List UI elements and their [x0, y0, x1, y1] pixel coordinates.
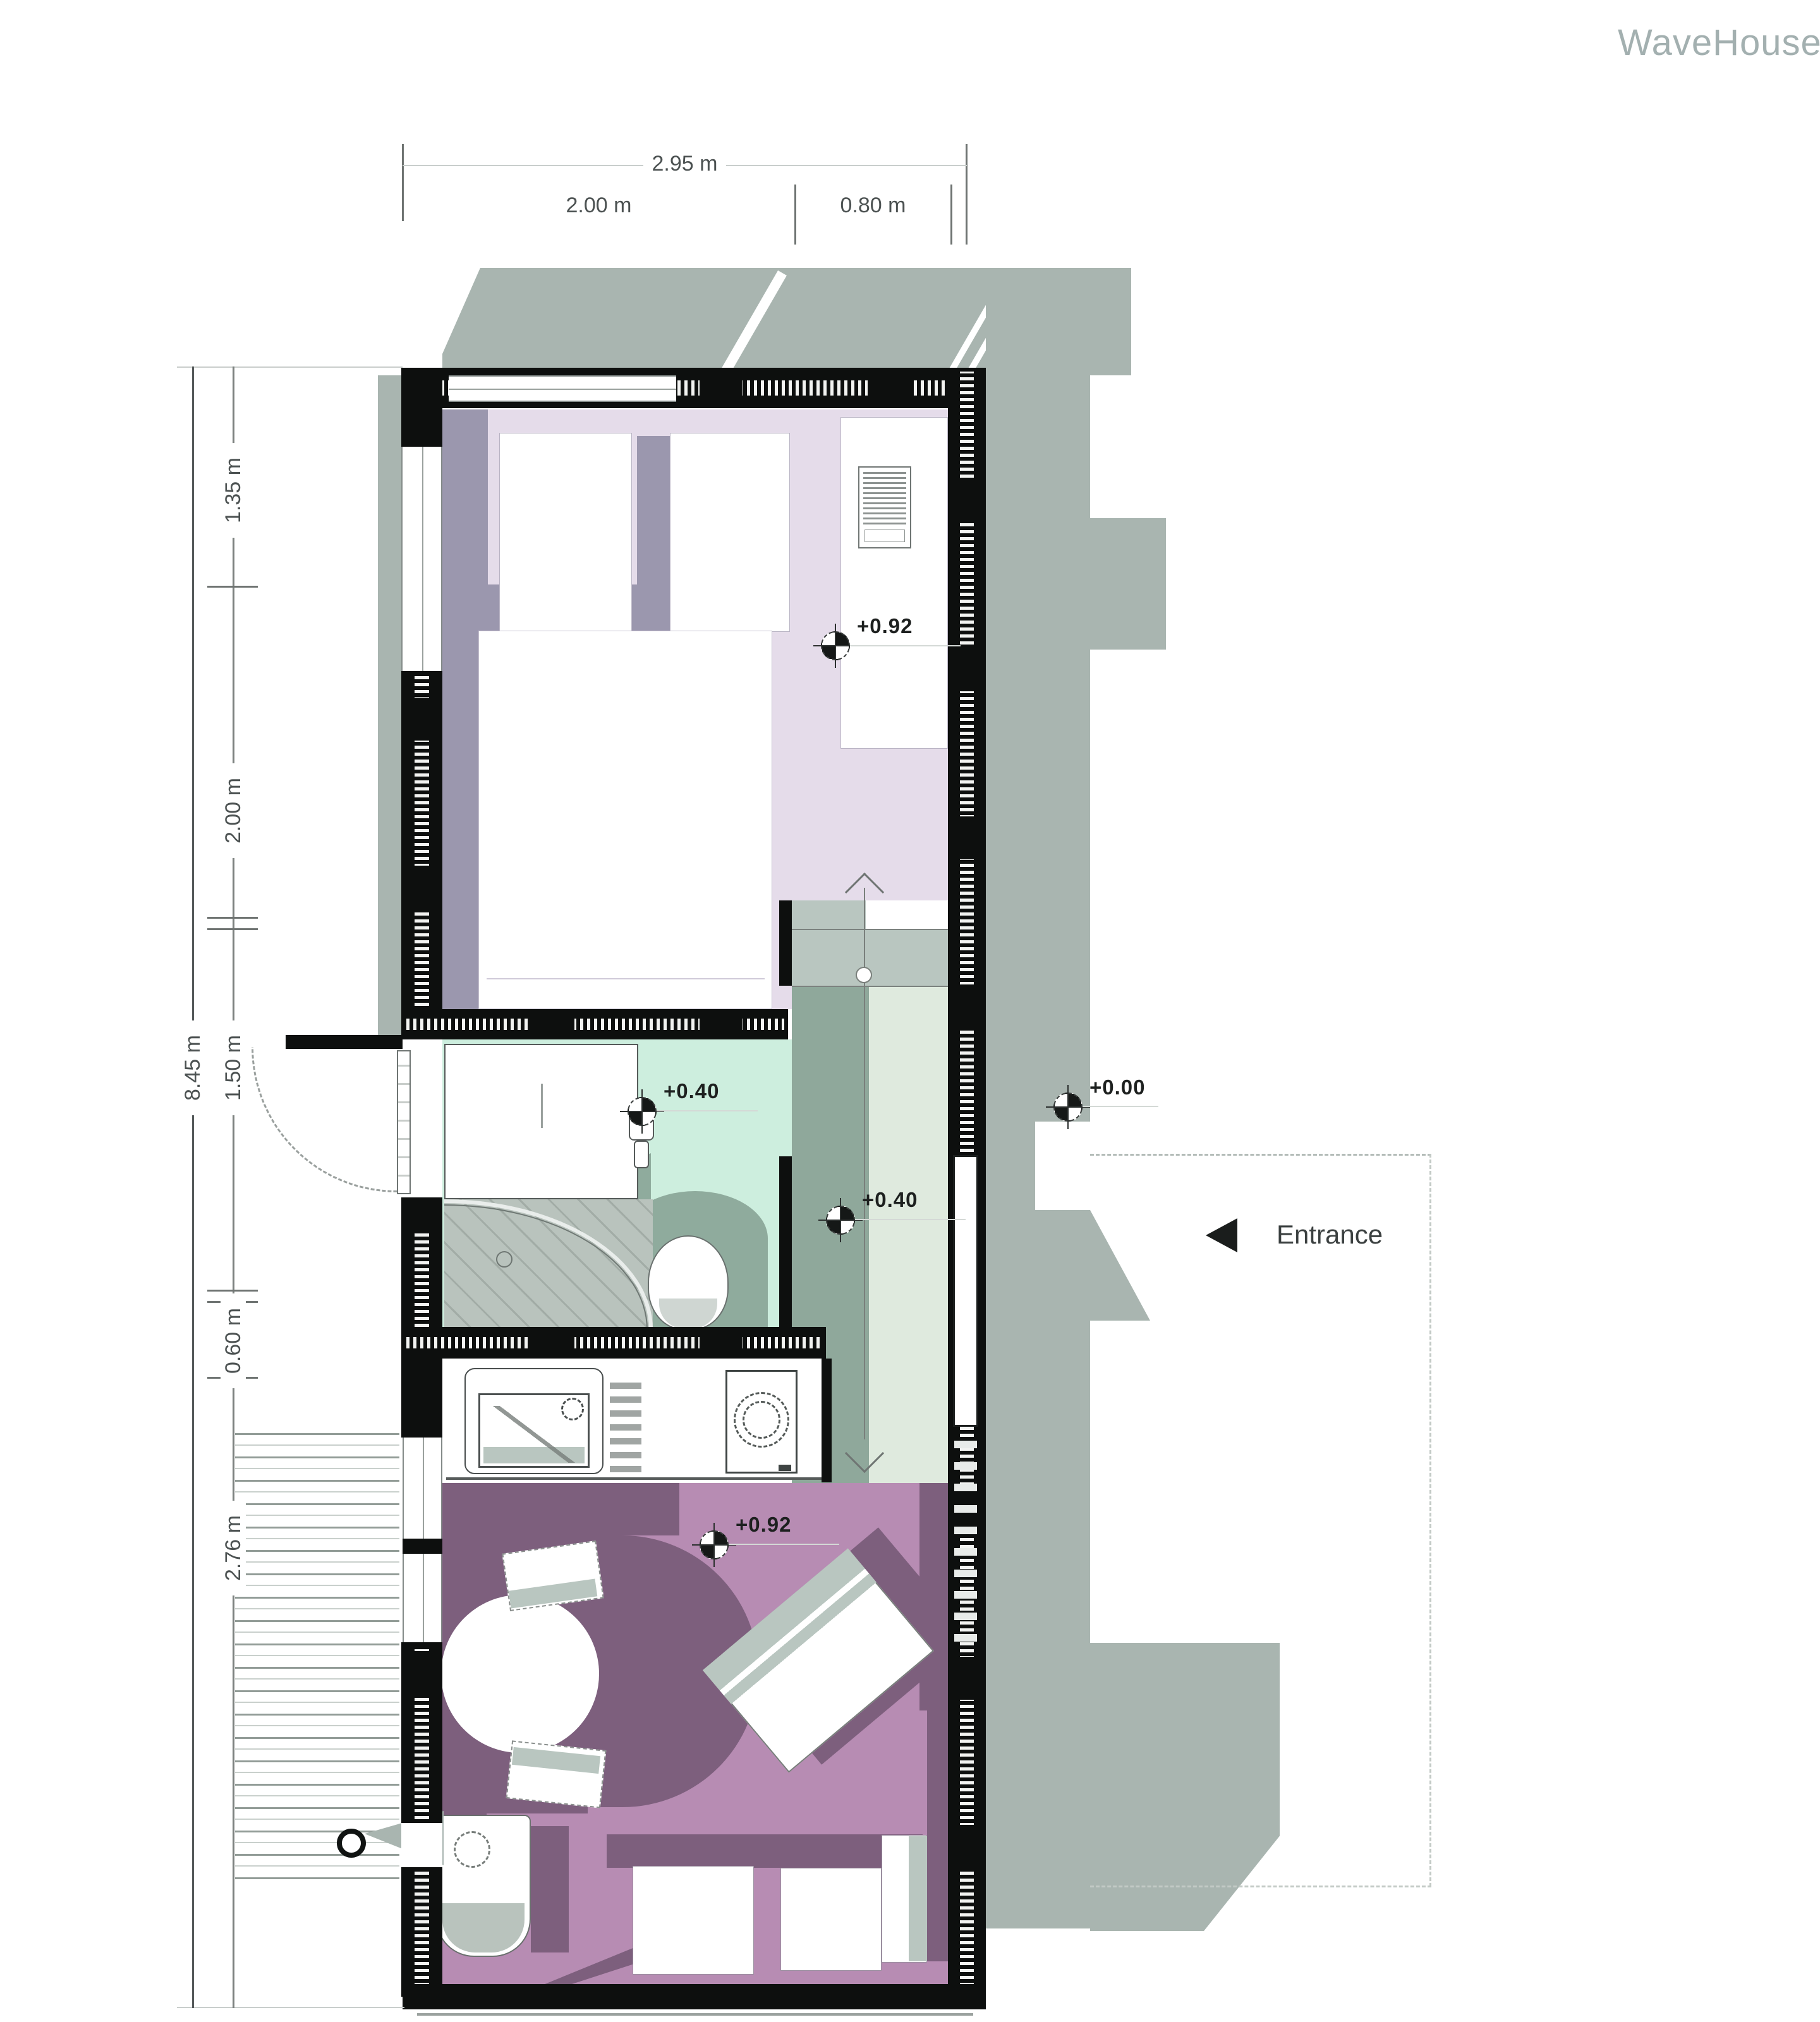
dim-line-segments [233, 366, 234, 2008]
level-label-bathroom: +0.40 [664, 1079, 720, 1103]
stair-tread-line [792, 929, 948, 930]
wall-bottom-line [417, 2013, 973, 2016]
dim-label-overall-height: 8.45 m [180, 1020, 205, 1115]
window-left-bedroom [401, 447, 442, 671]
wall-left-kitchen [401, 1355, 442, 1438]
deck-boards [235, 1433, 399, 1879]
stair-tread-line [792, 986, 948, 987]
dim-tick [207, 586, 258, 588]
wall-left [401, 671, 442, 1038]
plant-stand-base [442, 1903, 525, 1952]
laptop-keyboard [864, 530, 905, 542]
window-left-living [403, 1438, 442, 1539]
shadow [487, 1483, 679, 1535]
laptop-screen [863, 471, 906, 524]
kitchen-sink-diagonal [487, 1406, 581, 1463]
level-label-exterior: +0.00 [1089, 1075, 1146, 1099]
bed [478, 631, 772, 1009]
stair-step-shade [792, 900, 866, 929]
dining-table [441, 1595, 599, 1753]
entrance-label: Entrance [1277, 1220, 1383, 1250]
window-left-living [403, 1554, 442, 1642]
dim-extension [177, 2007, 404, 2008]
level-marker-icon [1053, 1093, 1083, 1122]
entrance-step-shadow [1090, 1210, 1150, 1321]
dim-label-seg1: 2.00 m [403, 193, 795, 218]
level-marker-icon [821, 631, 850, 660]
shadow [531, 1826, 569, 1952]
level-leader [850, 645, 961, 646]
entrance-landing [1035, 1122, 1090, 1210]
dim-line-overall-height [192, 366, 194, 2008]
level-marker-icon [826, 1206, 855, 1235]
level-label-bedroom: +0.92 [857, 614, 913, 638]
dim-label-left-seg3: 1.50 m [221, 1020, 246, 1115]
level-marker-icon [628, 1097, 657, 1126]
level-leader [1083, 1106, 1158, 1107]
entrance-path-line [1429, 1154, 1431, 1887]
floor-plan-sheet: WaveHouse [0, 0, 1820, 2022]
plant-stand-circle [454, 1831, 490, 1868]
entrance-door [953, 1155, 978, 1427]
shower-drain-icon [496, 1251, 513, 1268]
entrance-arrow-icon [1206, 1218, 1237, 1252]
level-marker-icon [700, 1530, 729, 1559]
ottoman [780, 1868, 882, 1971]
dim-label-left-seg4: 0.60 m [221, 1293, 246, 1388]
building-shadow-right-wide [1090, 518, 1166, 650]
level-label-hall: +0.40 [862, 1188, 918, 1212]
wall-frame [403, 1539, 442, 1554]
level-leader [855, 1219, 966, 1220]
entrance-path-line [1090, 1154, 1431, 1156]
building-shadow-bottom-blob [1090, 1643, 1280, 1931]
shadow [637, 436, 670, 632]
dim-label-overall-width: 2.95 m [403, 152, 967, 176]
dim-tick [207, 1290, 258, 1292]
wall-bottom [403, 1984, 986, 2009]
entrance-path-line [1090, 1886, 1431, 1887]
wall-stub [779, 900, 792, 986]
hall-floor-light [869, 986, 948, 1483]
building-shadow-left [378, 375, 403, 1038]
dim-label-seg2: 0.80 m [795, 193, 951, 218]
dim-label-left-seg5: 2.76 m [221, 1501, 246, 1595]
wall-bathroom-kitchen [403, 1327, 826, 1359]
level-leader [729, 1544, 839, 1545]
brand-logo: WaveHouse [1618, 21, 1811, 64]
dim-tick [966, 185, 968, 245]
faucet-icon [634, 1141, 649, 1168]
dim-tick [207, 928, 258, 930]
washing-machine-mark [779, 1465, 791, 1471]
ottoman [633, 1866, 754, 1975]
door-leaf [397, 1050, 411, 1194]
washbasin-mark [541, 1084, 543, 1128]
dish-rack [610, 1376, 641, 1472]
wall-kitchen-hall [822, 1359, 832, 1482]
wardrobe [670, 433, 790, 632]
entrance-door-sidelight [954, 1427, 977, 1642]
dim-label-left-seg1: 1.35 m [221, 443, 246, 538]
dim-extension [177, 366, 403, 368]
wardrobe [499, 433, 632, 637]
wall-left-living [401, 1867, 442, 1997]
bed-sheet-line [487, 978, 765, 979]
level-label-living: +0.92 [736, 1513, 792, 1537]
shadow [607, 1834, 923, 1868]
shadow [919, 1483, 948, 1710]
dim-label-left-seg2: 2.00 m [221, 763, 246, 858]
stair-direction-node [856, 967, 872, 983]
wall-bedroom-bathroom [403, 1009, 788, 1039]
wall-door-stub [286, 1035, 403, 1049]
wall-left [401, 368, 442, 447]
dim-tick [207, 917, 258, 919]
window-top [449, 375, 676, 402]
wall-bathroom-hall [779, 1156, 792, 1330]
door-gap-left-living [401, 1823, 442, 1867]
hose-ring-icon [337, 1829, 366, 1858]
wall-left-living [401, 1642, 442, 1823]
washing-machine-door-inner [743, 1401, 780, 1439]
shadow [927, 1706, 948, 1961]
sofa-back-cushion [909, 1836, 927, 1961]
level-leader [657, 1110, 758, 1111]
